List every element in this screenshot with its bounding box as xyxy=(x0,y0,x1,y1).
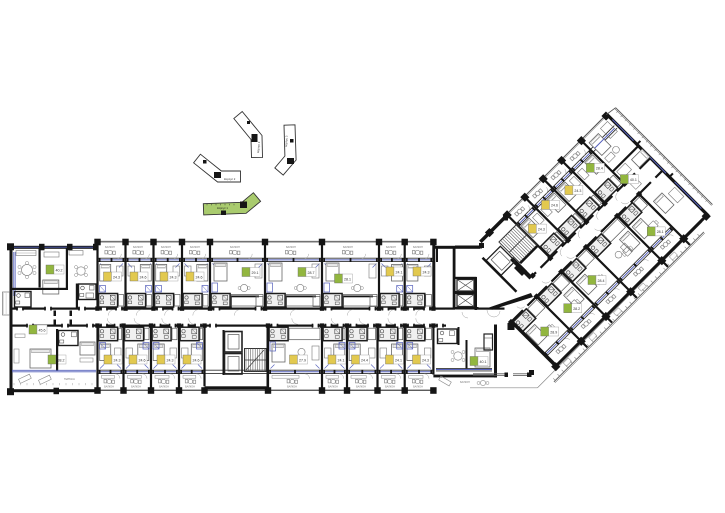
svg-text:БАЛКОН: БАЛКОН xyxy=(413,386,423,389)
svg-text:БАЛКОН: БАЛКОН xyxy=(287,386,297,389)
svg-text:24.4: 24.4 xyxy=(361,358,368,362)
svg-text:24.1: 24.1 xyxy=(395,358,402,362)
svg-text:40.2: 40.2 xyxy=(56,268,63,272)
svg-text:БАЛКОН: БАЛКОН xyxy=(386,246,396,249)
svg-text:БАЛКОН: БАЛКОН xyxy=(161,246,171,249)
svg-text:БАЛКОН: БАЛКОН xyxy=(286,246,296,249)
svg-text:24.6: 24.6 xyxy=(140,275,147,279)
svg-text:24.3: 24.3 xyxy=(574,189,581,193)
svg-text:БАЛКОН: БАЛКОН xyxy=(104,386,114,389)
svg-text:24.1: 24.1 xyxy=(396,270,403,274)
svg-text:Корпус 3: Корпус 3 xyxy=(284,135,289,147)
svg-text:40.1: 40.1 xyxy=(630,178,637,182)
svg-text:24.3: 24.3 xyxy=(423,270,430,274)
svg-text:24.3: 24.3 xyxy=(422,358,429,362)
svg-text:ТЕРРАСА: ТЕРРАСА xyxy=(64,378,75,381)
svg-text:24.3: 24.3 xyxy=(538,227,545,231)
svg-text:28.9: 28.9 xyxy=(550,330,557,334)
svg-text:24.6: 24.6 xyxy=(193,358,200,362)
svg-text:24.3: 24.3 xyxy=(114,358,121,362)
svg-text:БАЛКОН: БАЛКОН xyxy=(460,381,470,384)
svg-text:24.3: 24.3 xyxy=(113,275,120,279)
svg-text:27.9: 27.9 xyxy=(299,358,306,362)
svg-text:БАЛКОН: БАЛКОН xyxy=(413,246,423,249)
svg-text:28.1: 28.1 xyxy=(344,277,351,281)
svg-text:24.6: 24.6 xyxy=(139,358,146,362)
svg-text:БАЛКОН: БАЛКОН xyxy=(190,246,200,249)
svg-text:24.1: 24.1 xyxy=(338,358,345,362)
svg-text:БАЛКОН: БАЛКОН xyxy=(356,386,366,389)
svg-text:38.2: 38.2 xyxy=(58,358,65,362)
svg-text:29.1: 29.1 xyxy=(252,271,259,275)
svg-text:БАЛКОН: БАЛКОН xyxy=(385,386,395,389)
svg-text:28.2: 28.2 xyxy=(573,307,580,311)
svg-text:40.1: 40.1 xyxy=(480,360,487,364)
svg-text:БАЛКОН: БАЛКОН xyxy=(159,386,169,389)
svg-text:БАЛКОН: БАЛКОН xyxy=(185,386,195,389)
svg-text:28.4: 28.4 xyxy=(596,167,603,171)
svg-text:БАЛКОН: БАЛКОН xyxy=(133,246,143,249)
svg-text:24.6: 24.6 xyxy=(551,204,558,208)
svg-text:24.3: 24.3 xyxy=(170,275,177,279)
svg-text:24.3: 24.3 xyxy=(167,358,174,362)
svg-text:БАЛКОН: БАЛКОН xyxy=(131,386,141,389)
svg-text:28.4: 28.4 xyxy=(598,279,605,283)
svg-text:БАЛКОН: БАЛКОН xyxy=(230,246,240,249)
svg-text:БАЛКОН: БАЛКОН xyxy=(328,386,338,389)
svg-text:Корпус 1: Корпус 1 xyxy=(217,206,228,210)
svg-text:28.1: 28.1 xyxy=(657,230,664,234)
svg-text:24.6: 24.6 xyxy=(196,275,203,279)
svg-text:45.6: 45.6 xyxy=(39,328,46,332)
svg-text:28.7: 28.7 xyxy=(308,271,315,275)
svg-text:БАЛКОН: БАЛКОН xyxy=(105,246,115,249)
svg-text:БАЛКОН: БАЛКОН xyxy=(343,246,353,249)
svg-text:Корпус 2: Корпус 2 xyxy=(224,177,236,181)
